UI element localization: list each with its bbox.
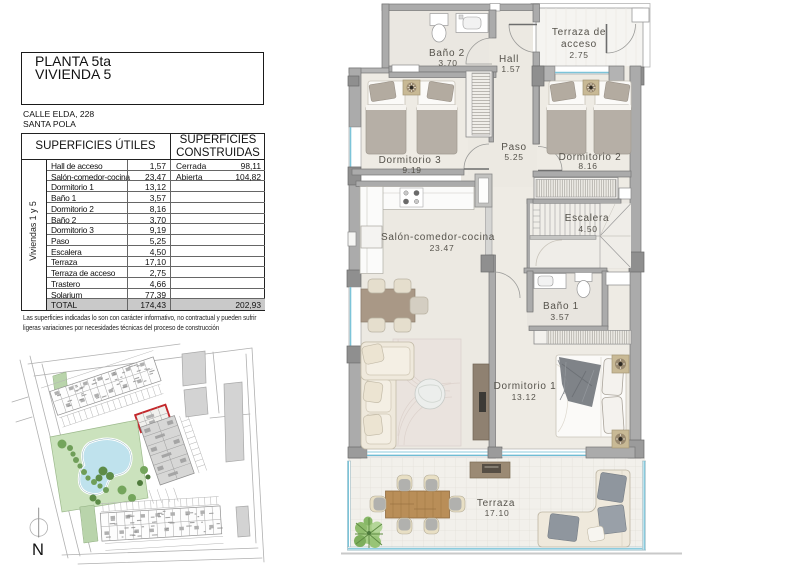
svg-text:9.19: 9.19 <box>402 165 421 175</box>
svg-text:17.10: 17.10 <box>485 508 510 518</box>
svg-text:Escalera: Escalera <box>565 213 610 224</box>
svg-text:8.16: 8.16 <box>578 161 597 171</box>
svg-text:Dormitorio 1: Dormitorio 1 <box>494 381 557 392</box>
svg-text:4.50: 4.50 <box>578 224 597 234</box>
svg-text:1.57: 1.57 <box>501 64 520 74</box>
svg-text:Baño 1: Baño 1 <box>543 301 579 312</box>
svg-text:13.12: 13.12 <box>512 392 537 402</box>
svg-text:Salón-comedor-cocina: Salón-comedor-cocina <box>381 232 495 243</box>
svg-text:5.25: 5.25 <box>504 152 523 162</box>
svg-text:Terraza de: Terraza de <box>552 27 606 38</box>
svg-text:3.70: 3.70 <box>438 58 457 68</box>
svg-text:acceso: acceso <box>561 39 597 50</box>
svg-text:3.57: 3.57 <box>550 312 569 322</box>
svg-text:23.47: 23.47 <box>430 243 455 253</box>
svg-text:2.75: 2.75 <box>569 50 588 60</box>
